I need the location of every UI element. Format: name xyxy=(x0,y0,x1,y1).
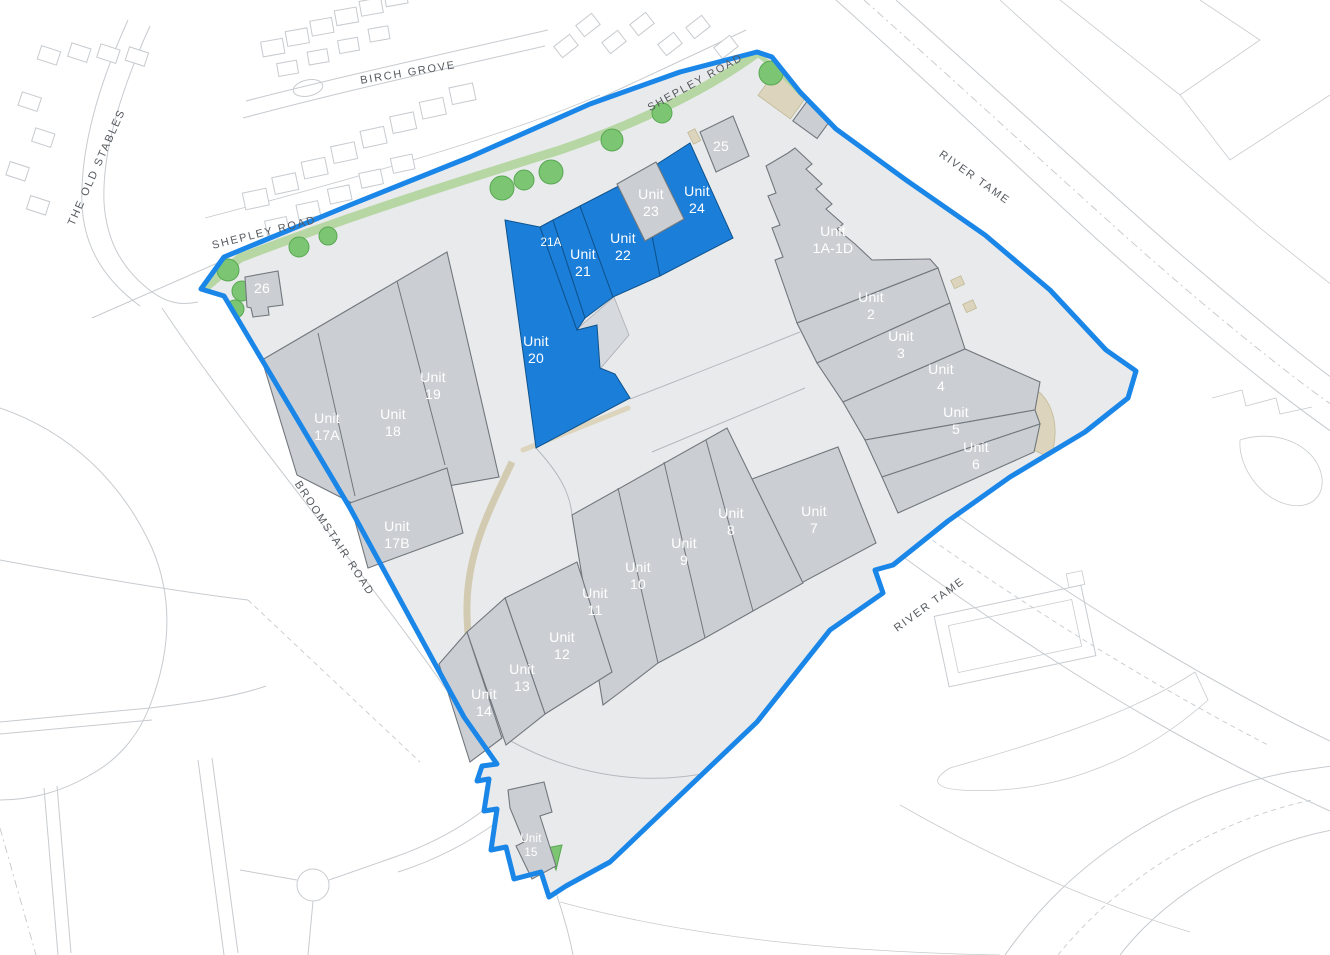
unit-14-label-line2: 14 xyxy=(476,703,492,719)
unit-7-label-line2: 7 xyxy=(810,520,818,536)
birch-grove-label: BIRCH GROVE xyxy=(359,59,456,87)
unit-17a-label-line2: 17A xyxy=(314,427,340,443)
river-tame-south-label: RIVER TAME xyxy=(892,575,967,634)
unit-20-label-line2: 20 xyxy=(528,350,544,366)
unit-20-label-line1: Unit xyxy=(523,333,549,349)
unit-13-label-line2: 13 xyxy=(514,678,530,694)
site-plan-map: Unit 1A-1D Unit 2 Unit 3 Unit 4 Unit 5 U… xyxy=(0,0,1330,955)
unit-7-label-line1: Unit xyxy=(801,503,827,519)
unit-10-label-line2: 10 xyxy=(630,576,646,592)
unit-10-label-line1: Unit xyxy=(625,559,651,575)
unit-21-label-line2: 21 xyxy=(575,263,591,279)
unit-6-label-line1: Unit xyxy=(963,439,989,455)
unit-3-label-line2: 3 xyxy=(897,345,905,361)
unit-8-label-line2: 8 xyxy=(727,522,735,538)
unit-14-label-line1: Unit xyxy=(471,686,497,702)
unit-17a-label-line1: Unit xyxy=(314,410,340,426)
unit-24-label-line1: Unit xyxy=(684,183,710,199)
unit-4-label-line1: Unit xyxy=(928,361,954,377)
the-old-stables-label: THE OLD STABLES xyxy=(66,107,128,227)
unit-3-label-line1: Unit xyxy=(888,328,914,344)
unit-11-label-line2: 11 xyxy=(588,602,603,618)
unit-17b-label-line1: Unit xyxy=(384,518,410,534)
unit-12-label-line1: Unit xyxy=(549,629,575,645)
unit-1a-1d-label-line2: 1A-1D xyxy=(813,240,854,256)
unit-5-label-line2: 5 xyxy=(952,421,960,437)
unit-25-label: 25 xyxy=(713,138,729,154)
unit-17b-label-line2: 17B xyxy=(384,535,410,551)
unit-22-label-line1: Unit xyxy=(610,230,636,246)
unit-19-label-line2: 19 xyxy=(425,386,441,402)
unit-8-label-line1: Unit xyxy=(718,505,744,521)
unit-2-label-line2: 2 xyxy=(867,306,875,322)
unit-21a-label: 21A xyxy=(540,237,561,249)
unit-2-label-line1: Unit xyxy=(858,289,884,305)
unit-22-label-line2: 22 xyxy=(615,247,631,263)
unit-4-label-line2: 4 xyxy=(937,378,945,394)
river-tame-north-label: RIVER TAME xyxy=(937,148,1013,207)
unit-1a-1d-label-line1: Unit xyxy=(820,223,846,239)
unit-5-label-line1: Unit xyxy=(943,404,969,420)
unit-21-label-line1: Unit xyxy=(570,246,596,262)
unit-6-label-line2: 6 xyxy=(972,456,980,472)
unit-18-label-line1: Unit xyxy=(380,406,406,422)
unit-12-label-line2: 12 xyxy=(554,646,570,662)
unit-9-label-line1: Unit xyxy=(671,535,697,551)
unit-19-label-line1: Unit xyxy=(420,369,446,385)
unit-9-label-line2: 9 xyxy=(680,552,688,568)
unit-26-label: 26 xyxy=(254,280,270,296)
unit-23-label-line2: 23 xyxy=(643,203,659,219)
unit-18-label-line2: 18 xyxy=(385,423,401,439)
unit-11-label-line1: Unit xyxy=(582,585,608,601)
unit-13-label-line1: Unit xyxy=(509,661,535,677)
unit-15-label-line1: Unit xyxy=(520,833,542,845)
unit-15-label-line2: 15 xyxy=(524,847,537,859)
unit-23-label-line1: Unit xyxy=(638,186,664,202)
unit-24-label-line2: 24 xyxy=(689,200,705,216)
site-plan-svg: Unit 1A-1D Unit 2 Unit 3 Unit 4 Unit 5 U… xyxy=(0,0,1330,955)
